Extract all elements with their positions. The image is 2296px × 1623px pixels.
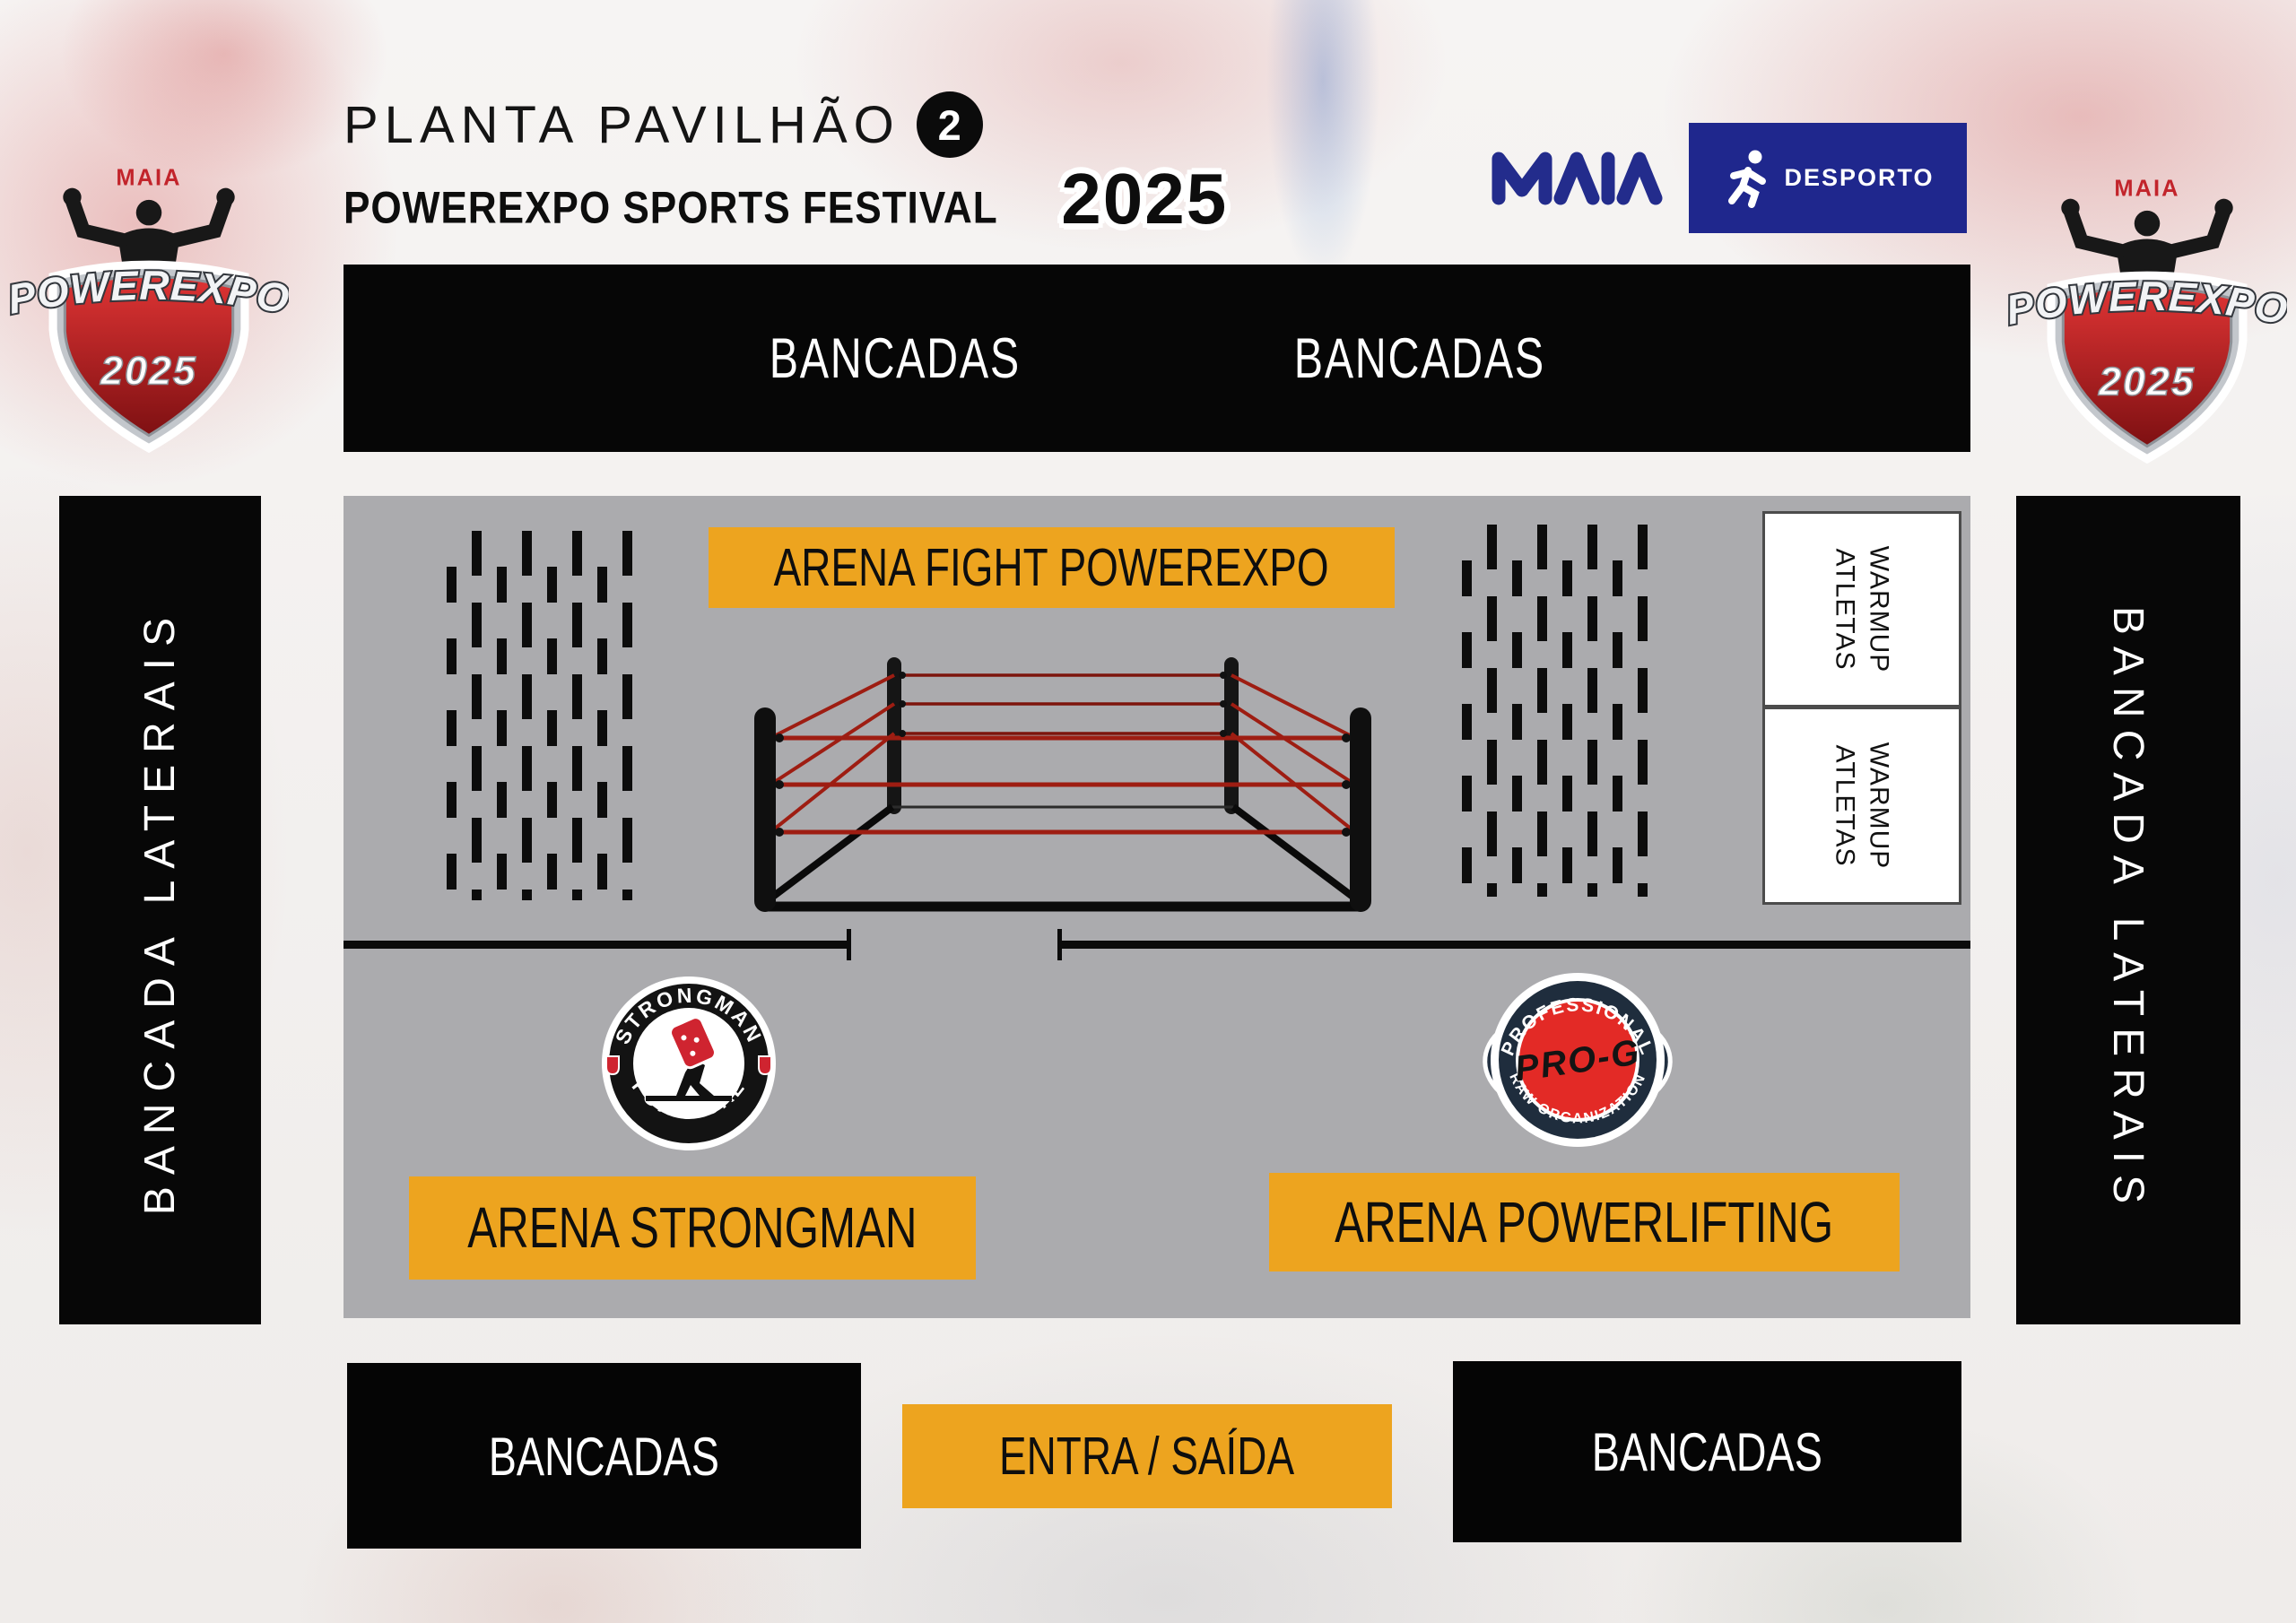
divider-wall-left: [344, 941, 850, 949]
entrance-exit-label: ENTRA / SAÍDA: [902, 1404, 1392, 1508]
right-side-stands-bar: BANCADA LATERAIS: [2016, 496, 2240, 1324]
pro-g-badge: PROFESSIONAL RAW ORGANIZATION PRO-G: [1483, 965, 1673, 1155]
page-title: PLANTA PAVILHÃO 2: [344, 86, 983, 163]
shield-brand-top: MAIA: [116, 166, 181, 191]
warmup-box-2: WARMUP ATLETAS: [1762, 707, 1961, 905]
seating-rows-left: [447, 531, 635, 900]
stands-label: BANCADA LATERAIS: [2104, 605, 2153, 1214]
powerexpo-shield-badge-left: MAIA POWEREXPO 2025: [9, 154, 289, 456]
top-stands-bar: BANCADAS BANCADAS: [344, 265, 1970, 452]
bottom-stands-left: BANCADAS: [347, 1363, 861, 1549]
arena-powerlifting-label: ARENA POWERLIFTING: [1269, 1173, 1900, 1271]
desporto-logo-plate: DESPORTO: [1689, 123, 1967, 233]
shield-year: 2025: [100, 349, 197, 394]
pavilion-number-badge: 2: [917, 91, 983, 158]
pavilion-floor: ARENA FIGHT POWEREXPO: [344, 496, 1970, 1318]
divider-wall-right: [1059, 941, 1970, 949]
desporto-label: DESPORTO: [1784, 164, 1934, 192]
arena-fight-label: ARENA FIGHT POWEREXPO: [709, 527, 1395, 608]
shield-year: 2025: [2098, 360, 2196, 404]
shield-brand-top: MAIA: [2114, 177, 2179, 202]
divider-end-tick-left: [847, 929, 851, 960]
divider-end-tick-right: [1057, 929, 1062, 960]
runner-icon: [1721, 149, 1770, 208]
seating-rows-right: [1462, 525, 1652, 897]
page-subtitle: POWEREXPO SPORTS FESTIVAL 2025: [344, 158, 1228, 240]
page-title-text: PLANTA PAVILHÃO: [344, 95, 900, 155]
festival-year: 2025: [1061, 158, 1228, 240]
boxing-ring: [740, 648, 1386, 917]
warmup-box-1: WARMUP ATLETAS: [1762, 511, 1961, 707]
maia-logo: [1491, 151, 1668, 206]
powerexpo-shield-badge-right: MAIA POWEREXPO 2025: [2007, 165, 2287, 466]
festival-name: POWEREXPO SPORTS FESTIVAL: [344, 181, 998, 233]
floor-plan-poster: PLANTA PAVILHÃO 2 POWEREXPO SPORTS FESTI…: [0, 0, 2296, 1623]
bottom-stands-right: BANCADAS: [1453, 1361, 1961, 1542]
arena-strongman-label: ARENA STRONGMAN: [409, 1176, 976, 1280]
stands-label: BANCADA LATERAIS: [135, 605, 185, 1214]
stands-label: BANCADAS: [1272, 329, 1568, 388]
strongman-portugal-badge: STRONGMAN PORTUGAL: [599, 974, 778, 1153]
left-side-stands-bar: BANCADA LATERAIS: [59, 496, 261, 1324]
stands-label: BANCADAS: [747, 329, 1043, 388]
